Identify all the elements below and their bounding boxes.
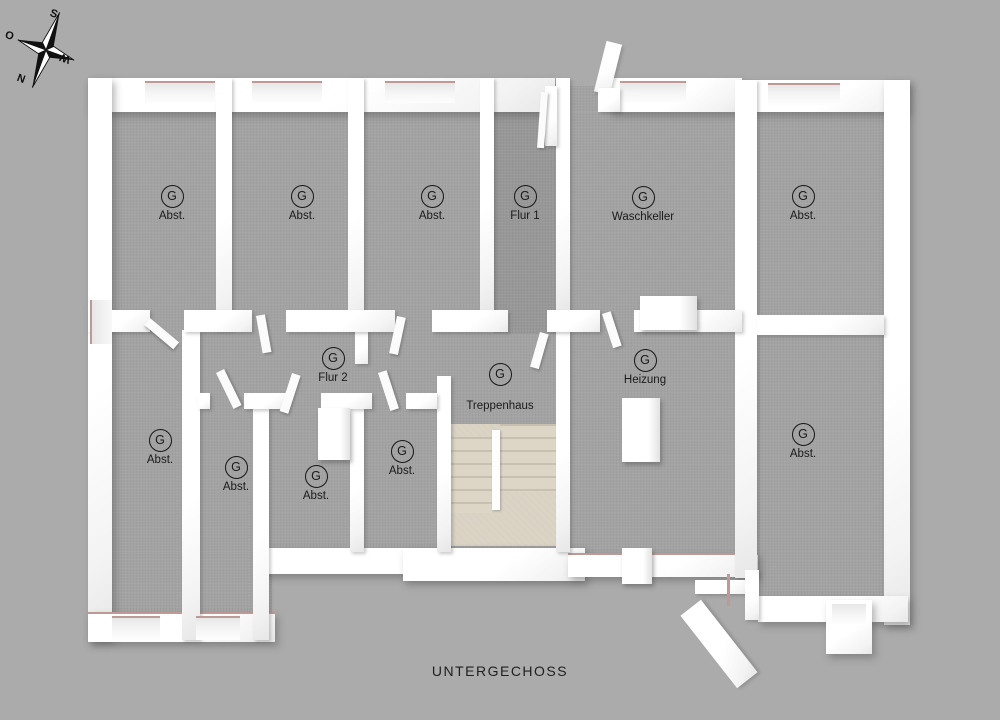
right-rooms-divider-wall (757, 315, 884, 335)
floor-caption: UNTERGECHOSS (0, 663, 1000, 679)
room-symbol: G (421, 185, 444, 208)
room-name: Abst. (223, 481, 249, 493)
interior-wall (216, 78, 232, 330)
room-name: Abst. (790, 448, 816, 460)
room-label-abst-1: G Abst. (127, 185, 217, 222)
room-label-heizung: G Heizung (600, 349, 690, 386)
corridor-wall-segment (547, 310, 600, 332)
room-symbol: G (305, 465, 328, 488)
room-label-abst-3: G Abst. (387, 185, 477, 222)
exterior-stair-landing (695, 580, 750, 594)
stair-divider-wall (492, 430, 500, 510)
corridor-wall-segment (321, 393, 372, 409)
corridor-wall-segment (286, 310, 395, 332)
wall-pier (622, 548, 652, 584)
floorplan: G Abst. G Abst. G Abst. G Flur 1 G Wasch… (0, 0, 1000, 720)
exterior-stair-wall (745, 570, 759, 620)
exterior-wall-left (88, 78, 112, 640)
room-label-waschkeller: G Waschkeller (598, 186, 688, 223)
room-label-abst-5: G Abst. (191, 456, 281, 493)
room-label-abst-right-bottom: G Abst. (758, 423, 848, 460)
window-recess (768, 83, 840, 105)
window-recess (252, 81, 322, 103)
corridor-wall-segment (184, 310, 252, 332)
corridor-wall-segment (198, 393, 210, 409)
room-label-abst-7: G Abst. (357, 440, 447, 477)
staircase-wall-right (556, 330, 570, 552)
room-label-abst-right-top: G Abst. (758, 185, 848, 222)
heating-unit (622, 398, 660, 462)
corridor-wall-segment (432, 310, 508, 332)
room-name: Flur 2 (318, 372, 347, 384)
room-symbol: G (149, 429, 172, 452)
window-recess (196, 616, 240, 640)
window-recess (145, 81, 215, 103)
room-symbol: G (225, 456, 248, 479)
room-name: Treppenhaus (466, 400, 533, 412)
room-name: Abst. (289, 210, 315, 222)
room-name: Abst. (389, 465, 415, 477)
window-recess (90, 300, 112, 344)
room-symbol: G (489, 363, 512, 386)
room-label-abst-6: G Abst. (271, 465, 361, 502)
room-symbol: G (291, 185, 314, 208)
room-name: Flur 1 (510, 210, 539, 222)
room-symbol: G (391, 440, 414, 463)
entrance-corner-wall (598, 88, 620, 112)
window-recess (620, 81, 686, 103)
floor-right-rooms (750, 95, 890, 600)
floorplan-canvas: S O W N (0, 0, 1000, 720)
compass-star-icon (0, 0, 96, 100)
compass-rose: S O W N (0, 0, 112, 108)
window-recess (112, 616, 160, 640)
room-label-abst-2: G Abst. (257, 185, 347, 222)
room-name: Waschkeller (612, 211, 674, 223)
room-name: Abst. (303, 490, 329, 502)
exterior-step-face (832, 604, 866, 624)
interior-wall (253, 408, 269, 640)
room-symbol: G (514, 185, 537, 208)
room-symbol: G (792, 185, 815, 208)
exterior-door-sill (727, 574, 730, 606)
stair-flight-right (500, 424, 556, 492)
room-name: Abst. (790, 210, 816, 222)
room-symbol: G (632, 186, 655, 209)
room-symbol: G (792, 423, 815, 446)
room-name: Abst. (159, 210, 185, 222)
chimney-block (640, 296, 697, 330)
room-name: Abst. (147, 454, 173, 466)
duct-block (318, 408, 350, 460)
room-symbol: G (161, 185, 184, 208)
interior-wall (348, 78, 364, 330)
room-symbol: G (322, 347, 345, 370)
exterior-wall-right (884, 80, 910, 625)
window-recess (385, 81, 455, 103)
exterior-wall-stair-bay (403, 548, 585, 581)
room-name: Heizung (624, 374, 666, 386)
room-label-treppenhaus: G Treppenhaus (455, 363, 545, 412)
room-label-flur1: G Flur 1 (480, 185, 570, 222)
corridor-wall-segment (406, 393, 437, 409)
room-name: Abst. (419, 210, 445, 222)
stair-flight-left (451, 437, 492, 513)
room-label-flur2: G Flur 2 (288, 347, 378, 384)
room-symbol: G (634, 349, 657, 372)
